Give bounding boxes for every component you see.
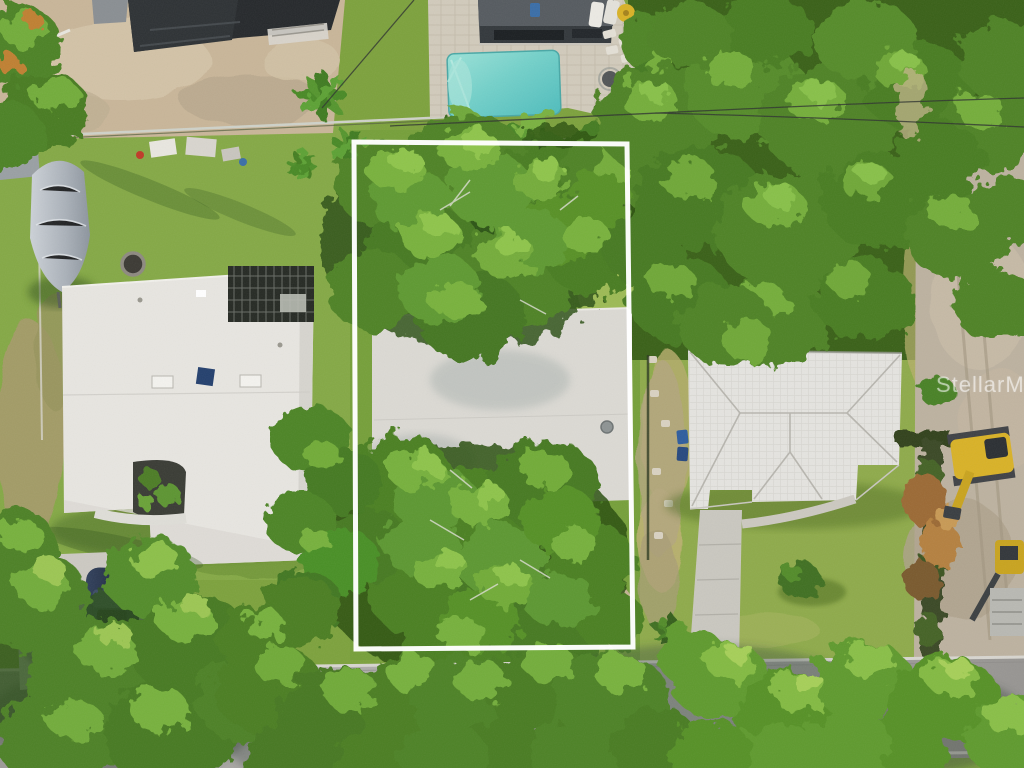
aerial-photo: StellarMLS	[0, 0, 1024, 768]
aerial-scene	[0, 0, 1024, 768]
photo-grain	[0, 0, 1024, 768]
